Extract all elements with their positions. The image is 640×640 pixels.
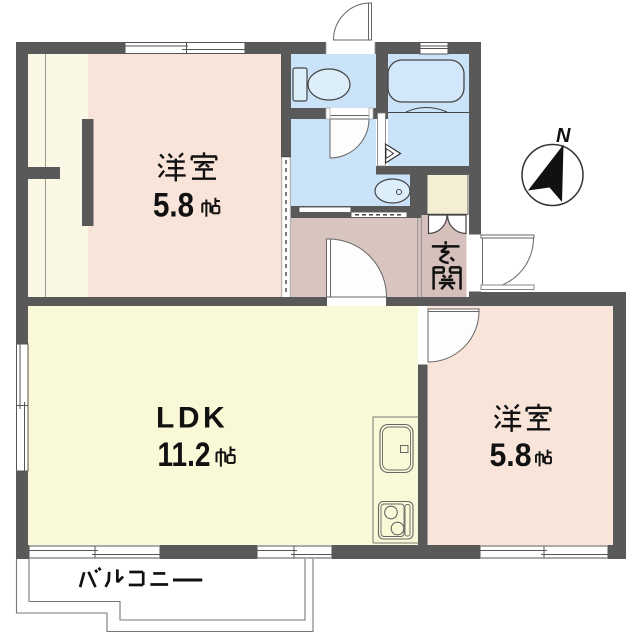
- svg-text:5.8: 5.8: [490, 437, 532, 473]
- svg-text:LDK: LDK: [156, 402, 228, 435]
- svg-text:5.8: 5.8: [153, 187, 194, 225]
- svg-text:N: N: [556, 125, 571, 147]
- svg-text:11.2: 11.2: [158, 436, 211, 474]
